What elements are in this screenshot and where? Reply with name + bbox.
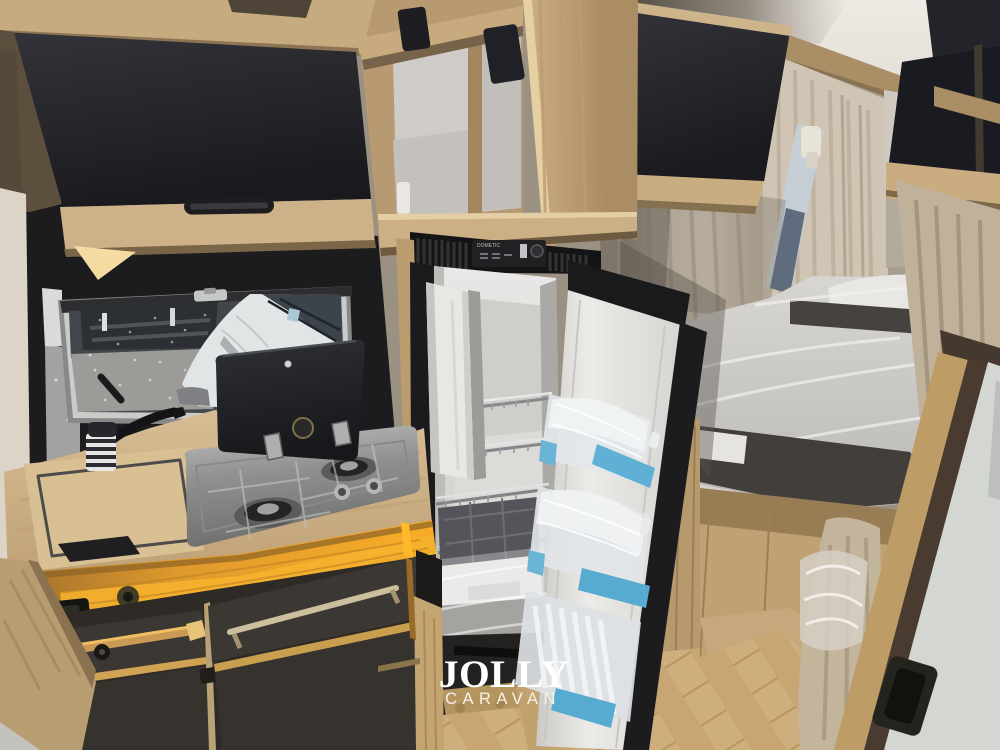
svg-text:DOMETIC: DOMETIC [477, 243, 500, 249]
